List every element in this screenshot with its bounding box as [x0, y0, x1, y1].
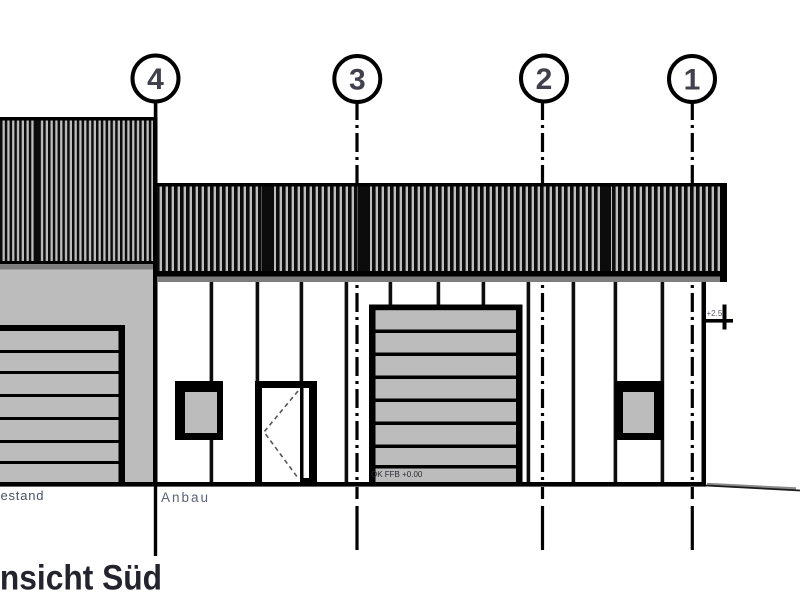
svg-text:2: 2 [536, 63, 553, 96]
svg-text:Anbau: Anbau [161, 490, 210, 505]
svg-text:Ansicht Süd: Ansicht Süd [0, 559, 162, 598]
svg-text:3: 3 [349, 64, 366, 97]
svg-text:Bestand: Bestand [0, 488, 44, 503]
svg-text:4: 4 [147, 63, 164, 96]
svg-text:1: 1 [684, 64, 701, 97]
svg-text:OK FFB +0.00: OK FFB +0.00 [371, 470, 423, 479]
